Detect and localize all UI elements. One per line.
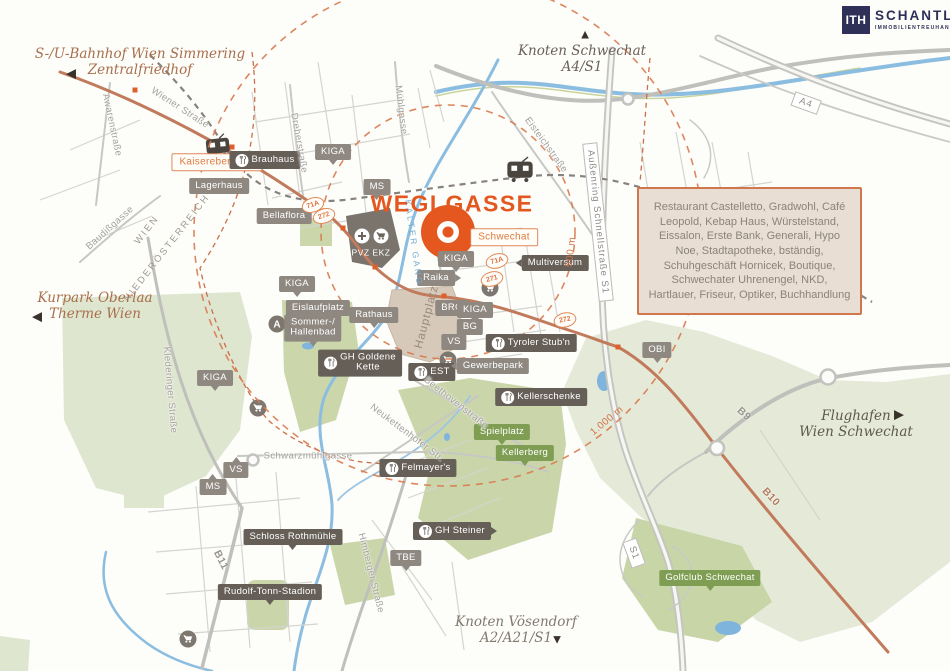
street-name: Eisteichstraße: [522, 115, 570, 175]
road-number: Außenring Schnellstraße S1: [585, 149, 611, 294]
amenities-info-box: Restaurant Castelletto, Gradwohl, Café L…: [637, 187, 862, 315]
bus-route-number: 271: [485, 274, 498, 284]
poi-label: Bellaflora: [263, 211, 306, 222]
poi-label: VS: [229, 465, 242, 476]
road-number: A4: [798, 96, 815, 111]
restaurant-icon: [324, 357, 337, 370]
map-canvas: A KaiserebersdorfBrauhausLagerhausBellaf…: [0, 0, 950, 671]
poi-label: Felmayer's: [401, 463, 450, 474]
label-overlay: KaiserebersdorfBrauhausLagerhausBellaflo…: [0, 0, 950, 671]
street-label-wiener-stra-e: Wiener Straße: [149, 85, 211, 130]
street-name: Beethovenstraße: [422, 375, 491, 432]
poi-label: TBE: [396, 553, 415, 564]
poi-tag-pvz-ekz: PVZ EKZ: [346, 246, 397, 261]
street-label-m-hlgasse: Mühlgasse: [393, 85, 410, 136]
street-label-klederinger-stra-e: Klederinger Straße: [161, 346, 180, 434]
arrow-down-icon: ▼: [551, 633, 564, 646]
brand-logo: ITH SCHANTL IMMOBILIENTREUHAND: [842, 6, 950, 34]
signpost-kurpark-oberlaa: Kurpark OberlaaTherme Wien: [37, 290, 152, 322]
poi-tag-kiga: KIGA: [457, 302, 493, 318]
poi-tag-kiga: KIGA: [197, 370, 233, 386]
street-label-baudi-gasse: Baudißgasse: [84, 204, 136, 252]
road-label-b9: B9: [735, 405, 754, 424]
road-label-a4: A4: [790, 91, 821, 115]
poi-tag-brauhaus: Brauhaus: [229, 151, 300, 169]
street-label-awarenstra-e: Awarenstraße: [100, 93, 124, 158]
poi-label: OBI: [648, 345, 665, 356]
street-name: Baudißgasse: [84, 204, 136, 252]
poi-tag-bg: BG: [457, 319, 483, 335]
poi-tag-gh-steiner: GH Steiner: [413, 522, 491, 540]
arrow-up-icon: ▲: [579, 28, 592, 41]
poi-label: Rathaus: [355, 310, 392, 321]
poi-tag-sommer-hallenbad: Sommer-/ Hallenbad: [284, 315, 341, 342]
road-number: S1: [627, 545, 642, 562]
poi-label: VS: [447, 337, 460, 348]
poi-label: KIGA: [285, 279, 309, 290]
signpost-line: Kurpark Oberlaa: [37, 290, 152, 306]
region-label-wien: WIEN: [132, 213, 161, 246]
bus-route-number: 71A: [306, 200, 320, 211]
signpost-line: Knoten Schwechat: [518, 43, 646, 59]
poi-tag-lagerhaus: Lagerhaus: [189, 178, 249, 194]
poi-label: Rudolf-Tonn-Stadion: [224, 587, 316, 598]
street-name: Mühlgasse: [393, 85, 410, 136]
bus-route-badge-271-3: 271: [479, 269, 505, 289]
area-label-hauptplatz: Hauptplatz: [413, 284, 441, 350]
poi-tag-kellerberg: Kellerberg: [496, 445, 554, 461]
poi-label: Gewerbepark: [463, 361, 523, 372]
poi-tag-schloss-rothm-hle: Schloss Rothmühle: [244, 529, 343, 545]
poi-label: Raika: [423, 273, 449, 284]
poi-tag-kiga: KIGA: [438, 251, 474, 267]
poi-tag-ms: MS: [200, 479, 227, 495]
street-name: Schwarzmühlgasse: [264, 451, 353, 462]
region-label-nieder-sterreich: NIEDERÖSTERREICH: [122, 192, 213, 304]
restaurant-icon: [419, 525, 432, 538]
poi-tag-kellerschenke: Kellerschenke: [495, 388, 587, 406]
poi-label: KIGA: [321, 147, 345, 158]
brand-name: SCHANTL: [875, 8, 950, 23]
poi-tag-gh-goldene-kette: GH Goldene Kette: [318, 350, 402, 377]
poi-label: Eislaufplatz: [292, 303, 344, 314]
poi-tag-vs: VS: [441, 334, 466, 350]
poi-tag-gewerbepark: Gewerbepark: [457, 358, 529, 374]
bus-route-badge-71a-2: 71A: [484, 251, 510, 271]
bus-route-number: 272: [317, 211, 330, 221]
bus-route-number: 272: [559, 315, 572, 324]
restaurant-icon: [492, 337, 505, 350]
poi-tag-schwechat: Schwechat: [470, 228, 538, 246]
area-name: Hauptplatz: [413, 284, 441, 350]
poi-label: KIGA: [444, 254, 468, 265]
restaurant-icon: [235, 154, 248, 167]
poi-label: Schwechat: [478, 231, 530, 243]
poi-tag-rathaus: Rathaus: [349, 307, 398, 323]
poi-label: KIGA: [463, 305, 487, 316]
poi-tag-golfclub-schwechat: Golfclub Schwechat: [659, 570, 760, 586]
poi-label: KIGA: [203, 373, 227, 384]
brand-logo-mark-icon: ITH: [842, 6, 870, 34]
street-name: Wiener Straße: [149, 85, 211, 130]
poi-label: Kellerschenke: [517, 392, 581, 403]
poi-label: GH Steiner: [435, 526, 485, 537]
road-number: B10: [760, 485, 783, 508]
street-name: Neukettenhofer Str.: [368, 402, 446, 465]
poi-label: GH Goldene Kette: [340, 352, 396, 374]
street-name: Himberger Straße: [356, 532, 386, 614]
signpost-knoten-schwechat: Knoten SchwechatA4/S1: [518, 43, 646, 75]
poi-label: Tyroler Stub'n: [508, 338, 571, 349]
poi-tag-multiversum: Multiversum: [522, 255, 589, 271]
poi-label: Lagerhaus: [195, 181, 243, 192]
arrow-right-icon: ▶: [894, 408, 904, 421]
poi-label: MS: [206, 482, 221, 493]
street-name: Awarenstraße: [100, 93, 124, 158]
poi-label: BG: [463, 322, 477, 333]
road-number: B9: [735, 405, 754, 424]
street-label-himberger-stra-e: Himberger Straße: [356, 532, 386, 614]
signpost-line: Wien Schwechat: [799, 424, 913, 440]
poi-label: Golfclub Schwechat: [665, 573, 754, 584]
poi-tag-vs: VS: [223, 462, 248, 478]
signpost-line: Therme Wien: [37, 306, 152, 322]
poi-label: Sommer-/ Hallenbad: [290, 317, 335, 339]
poi-tag-eislaufplatz: Eislaufplatz: [286, 300, 350, 316]
street-name: Klederinger Straße: [161, 346, 180, 434]
poi-label: Brauhaus: [251, 155, 294, 166]
road-label-au-enring-schnellstra-e-s1: Außenring Schnellstraße S1: [582, 142, 614, 302]
road-label-s1: S1: [622, 537, 646, 568]
road-label-b10: B10: [760, 485, 783, 508]
arrow-left-icon: ◀: [32, 310, 42, 323]
poi-tag-felmayer-s: Felmayer's: [379, 459, 456, 477]
distance-ring-label-1-000-m: 1.000 m: [588, 404, 625, 438]
poi-tag-tyroler-stub-n: Tyroler Stub'n: [486, 334, 577, 352]
street-label-eisteichstra-e: Eisteichstraße: [522, 115, 570, 175]
restaurant-icon: [501, 391, 514, 404]
street-label-schwarzm-hlgasse: Schwarzmühlgasse: [264, 451, 353, 462]
restaurant-icon: [385, 462, 398, 475]
region-name: NIEDERÖSTERREICH: [122, 192, 213, 304]
arrow-left-icon: ◀: [66, 67, 76, 80]
signpost-line: Knoten Vösendorf: [455, 614, 577, 630]
poi-label: Kellerberg: [502, 448, 548, 459]
poi-tag-obi: OBI: [642, 342, 671, 358]
street-label-neukettenhofer-str: Neukettenhofer Str.: [368, 402, 446, 465]
signpost-line: S-/U-Bahnhof Wien Simmering: [35, 46, 245, 62]
road-number: B11: [211, 548, 231, 571]
poi-tag-kiga: KIGA: [315, 144, 351, 160]
bus-route-number: 71A: [490, 256, 504, 266]
brand-subtitle: IMMOBILIENTREUHAND: [875, 25, 950, 31]
bus-route-badge-272-4: 272: [552, 310, 578, 329]
project-title: WEGLGASSE: [370, 191, 533, 218]
poi-tag-rudolf-tonn-stadion: Rudolf-Tonn-Stadion: [218, 584, 322, 600]
poi-tag-kiga: KIGA: [279, 276, 315, 292]
brand-text: SCHANTL IMMOBILIENTREUHAND: [875, 6, 950, 31]
signpost-line: A4/S1: [518, 59, 646, 75]
poi-tag-tbe: TBE: [390, 550, 421, 566]
road-label-b11: B11: [211, 548, 231, 571]
street-label-beethovenstra-e: Beethovenstraße: [422, 375, 491, 432]
region-name: WIEN: [132, 213, 161, 246]
poi-label: PVZ EKZ: [352, 248, 391, 258]
poi-label: Spielplatz: [480, 427, 524, 438]
distance-ring-text: 1.000 m: [588, 404, 625, 438]
poi-label: Schloss Rothmühle: [250, 532, 337, 543]
